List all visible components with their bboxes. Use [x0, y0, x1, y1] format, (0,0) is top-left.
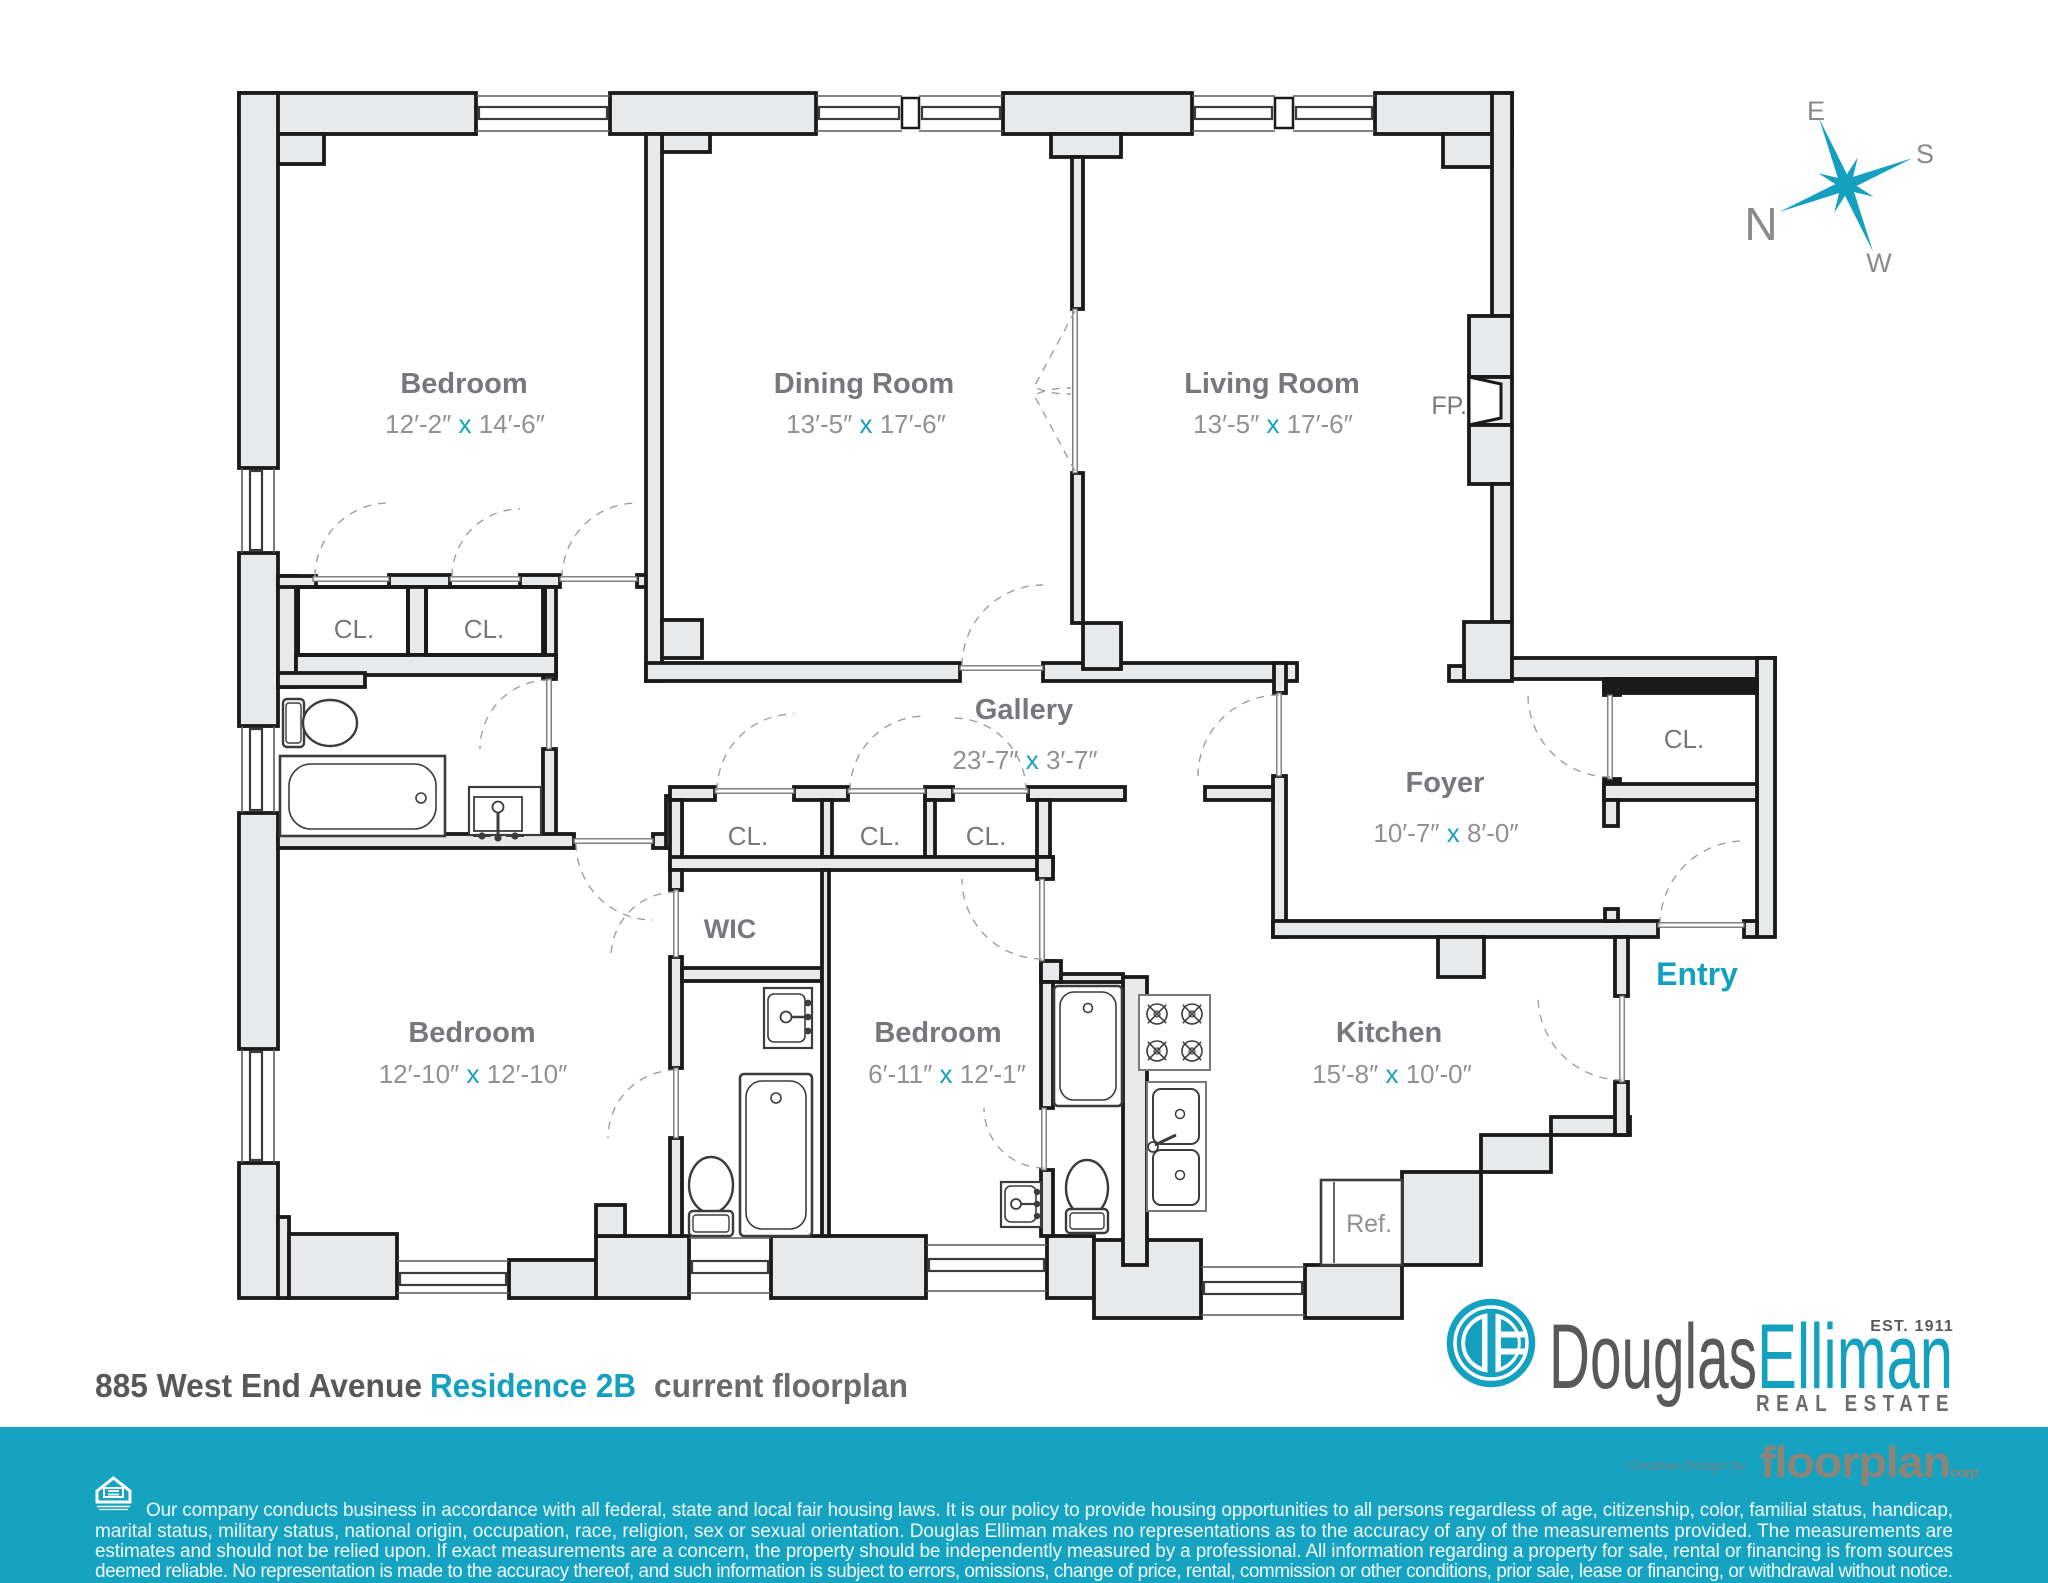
svg-text:12′-2″ x 14′-6″: 12′-2″ x 14′-6″ [385, 409, 545, 439]
svg-text:marital status, military statu: marital status, military status, nationa… [95, 1521, 1953, 1542]
svg-text:S: S [1916, 139, 1934, 169]
svg-text:12′-10″ x 12′-10″: 12′-10″ x 12′-10″ [379, 1059, 568, 1089]
svg-text:23′-7″ x 3′-7″: 23′-7″ x 3′-7″ [952, 745, 1097, 775]
svg-text:current floorplan: current floorplan [654, 1367, 908, 1404]
svg-text:Kitchen: Kitchen [1336, 1017, 1442, 1049]
svg-text:EST. 1911: EST. 1911 [1870, 1318, 1954, 1335]
svg-text:885 West End Avenue: 885 West End Avenue [95, 1367, 422, 1404]
svg-text:15′-8″ x 10′-0″: 15′-8″ x 10′-0″ [1312, 1059, 1472, 1089]
svg-text:6′-11″ x 12′-1″: 6′-11″ x 12′-1″ [868, 1059, 1026, 1089]
svg-text:Bedroom: Bedroom [408, 1017, 535, 1049]
svg-text:FP.: FP. [1431, 392, 1467, 420]
svg-text:estimates and should not be re: estimates and should not be relied upon.… [95, 1541, 1953, 1562]
svg-text:13′-5″ x 17′-6″: 13′-5″ x 17′-6″ [786, 409, 946, 439]
svg-text:Our company conducts business: Our company conducts business in accorda… [146, 1500, 1953, 1521]
svg-text:Living Room: Living Room [1184, 368, 1360, 400]
svg-text:CL.: CL. [728, 821, 768, 851]
svg-text:Creative Design by: Creative Design by [1627, 1457, 1746, 1473]
svg-text:CL.: CL. [334, 614, 374, 644]
svg-text:Foyer: Foyer [1406, 767, 1485, 799]
svg-text:CL.: CL. [860, 821, 900, 851]
svg-text:N: N [1744, 198, 1777, 250]
svg-text:CL.: CL. [966, 821, 1006, 851]
svg-text:CL.: CL. [464, 614, 504, 644]
svg-text:REAL ESTATE: REAL ESTATE [1756, 1390, 1955, 1416]
svg-text:Residence 2B: Residence 2B [430, 1367, 636, 1404]
svg-text:Gallery: Gallery [975, 694, 1073, 726]
svg-text:deemed reliable. No representa: deemed reliable. No representation is ma… [95, 1561, 1953, 1582]
svg-text:Douglas: Douglas [1549, 1306, 1757, 1408]
svg-text:Bedroom: Bedroom [400, 368, 527, 400]
svg-text:10′-7″ x 8′-0″: 10′-7″ x 8′-0″ [1373, 818, 1518, 848]
svg-text:Entry: Entry [1656, 956, 1738, 992]
svg-text:floorplancorp: floorplancorp [1760, 1438, 1978, 1487]
svg-text:WIC: WIC [704, 914, 756, 944]
svg-text:CL.: CL. [1664, 724, 1704, 754]
svg-text:Ref.: Ref. [1346, 1210, 1392, 1238]
svg-text:Bedroom: Bedroom [874, 1017, 1001, 1049]
svg-text:E: E [1807, 96, 1825, 126]
svg-text:W: W [1866, 248, 1892, 278]
svg-text:Dining Room: Dining Room [774, 368, 954, 400]
svg-text:13′-5″ x 17′-6″: 13′-5″ x 17′-6″ [1193, 409, 1353, 439]
